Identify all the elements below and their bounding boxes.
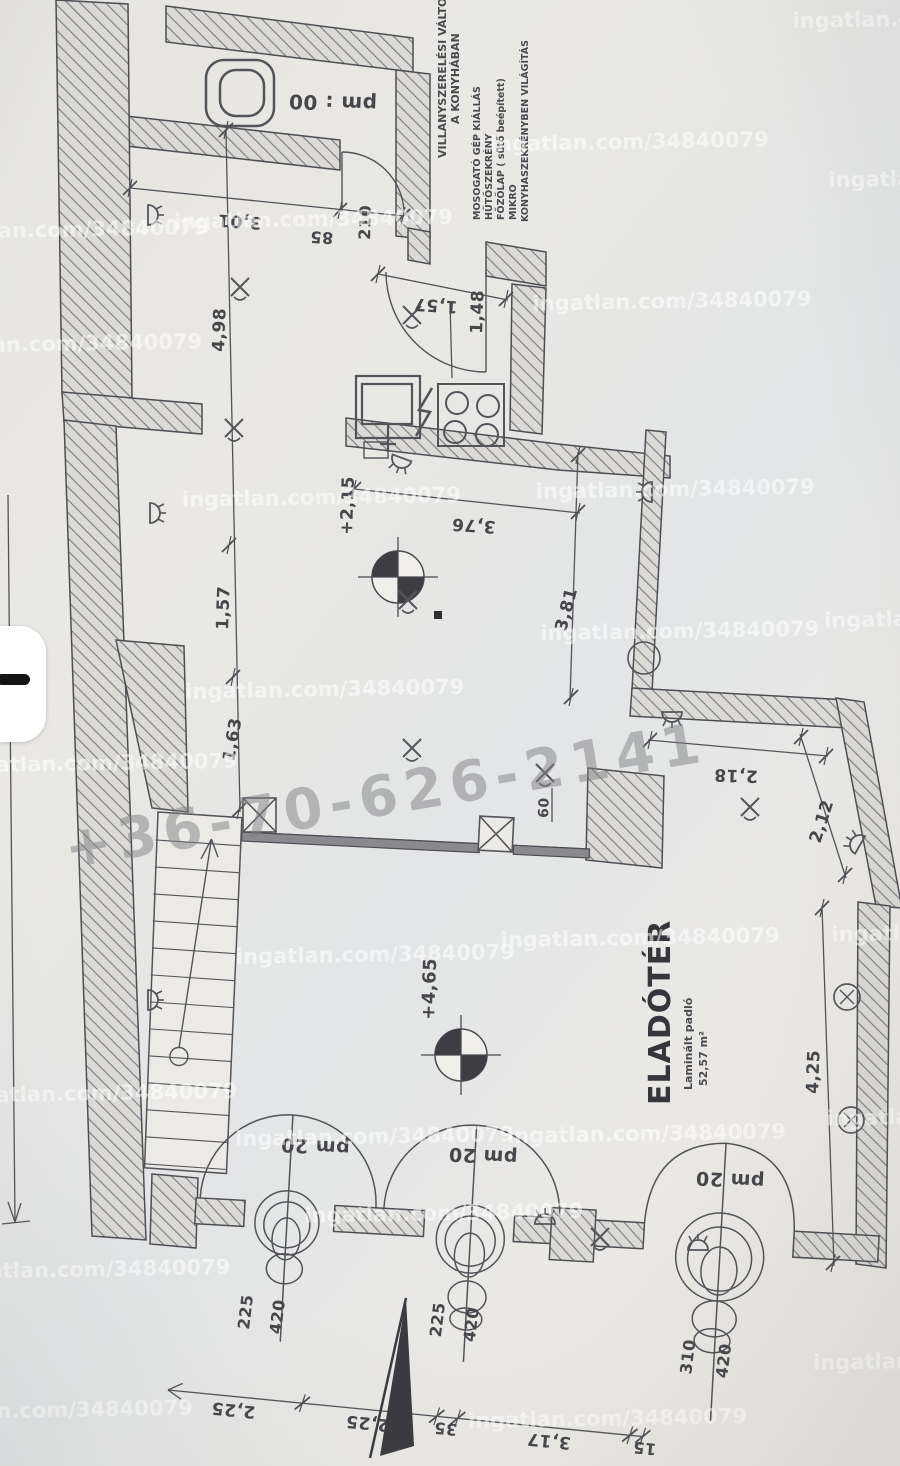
watermark-text: ingatlan.com/34840079 (827, 1102, 900, 1131)
dim-open2-width: 225 (426, 1301, 449, 1338)
wall-counter-band (346, 418, 670, 478)
dim-right-c: 4,25 (803, 1050, 825, 1095)
dim-hall-width: 3,76 (451, 513, 496, 536)
notes-item-1: MOSOGATÓ GÉP KIÁLLÁS (471, 86, 483, 220)
dim-chain-5: 15 (632, 1438, 657, 1459)
watermark-text: ingatlan.com/34840079 (831, 918, 900, 947)
wall-sconce-icon (150, 503, 166, 523)
watermark-text: ingatlan.com/34840079 (813, 1346, 900, 1375)
level-marker-main (421, 1015, 501, 1095)
dim-chain-2: 2,25 (345, 1411, 391, 1435)
watermark-text: ingatlan.com/34840079 (507, 1119, 786, 1148)
wall-sconce-icon (387, 455, 411, 477)
dim-open3-width: 310 (676, 1338, 699, 1375)
notes-item-4: MIKRO (508, 184, 519, 220)
level-main-label: +4,65 (418, 957, 441, 1020)
ceiling-lamp-icon (741, 798, 759, 820)
watermark-text: ingatlan.com/34840079 (532, 287, 811, 316)
watermark-text: ingatlan.com/34840079 (500, 923, 779, 952)
watermark-text: ingatlan.com/34840079 (235, 1122, 514, 1151)
dim-left-a: 4,98 (209, 308, 231, 353)
watermark-text: ingatlan.com/34840079 (304, 1199, 583, 1228)
bottom-wall: pm 20 pm 20 pm 20 225 420 225 420 310 42… (185, 1110, 884, 1430)
wall-kitchen-top (486, 242, 546, 286)
level-marker-mid (358, 537, 438, 617)
notes-title-line2: A KONYHÁBAN (449, 33, 462, 124)
watermark-text: ingatlan.com/34840079 (468, 1404, 747, 1433)
watermark-text: ingatlan.com/34840079 (174, 205, 453, 234)
wall-sconce-icon (688, 1234, 708, 1250)
floor-dot (434, 611, 442, 619)
wc-parapet-label: pm : 00 (288, 89, 377, 116)
shaft-box-mid (478, 816, 514, 852)
minimize-handle-button[interactable] (0, 626, 46, 742)
watermark-text: ingatlan.com/34840079 (182, 483, 461, 512)
room-area-label: 52,57 m² (697, 1031, 710, 1086)
watermark-text: ingatlan.com/34840079 (185, 675, 464, 704)
dim-open2-height: 420 (460, 1306, 483, 1343)
dim-chain-1: 2,25 (211, 1397, 257, 1421)
minus-icon (0, 674, 30, 685)
watermark-text: ingatlan.com/34840079 (536, 475, 815, 504)
wall-bottom-left-block (150, 1174, 198, 1248)
watermark-text: ingatlan.com/34840079 (792, 4, 900, 33)
watermark-text: ingatlan.com/34840079 (0, 1255, 231, 1284)
door3-parapet-label: pm 20 (695, 1167, 765, 1193)
dim-chain-3: 35 (433, 1418, 458, 1439)
ceiling-lamp-icon (225, 419, 243, 441)
ceiling-lamp-icon (231, 278, 249, 300)
kitchen-notes: VILLANYSZERELÉSI VÁLTOZÁSOK A KONYHÁBAN … (436, 0, 531, 222)
wall-right-side (856, 902, 890, 1268)
dim-open3-height: 420 (712, 1342, 735, 1379)
floorplan-photo: pm 20 pm 20 pm 20 225 420 225 420 310 42… (0, 0, 900, 1466)
watermark-text: ingatlan.com/34840079 (828, 163, 900, 192)
dim-chain-4: 3,17 (526, 1428, 572, 1452)
watermark-text: ingatlan.com/34840079 (236, 940, 515, 969)
watermark-text: ingatlan.com/34840079 (0, 1396, 193, 1425)
watermark-text: ingatlan.com/34840079 (540, 617, 819, 646)
toilet-icon (206, 60, 274, 126)
wall-kitchen-top-stub (408, 228, 430, 264)
ceiling-lamp-icon (834, 984, 860, 1010)
room-floor-label: Laminált padló (682, 997, 695, 1090)
dim-open1-width: 225 (234, 1293, 257, 1330)
watermark-text: ingatlan.com/34840079 (0, 1079, 237, 1108)
watermark-text: ingatlan.com/34840079 (0, 329, 202, 358)
dim-open1-height: 420 (266, 1298, 289, 1335)
watermark-text: ingatlan.com/34840079 (490, 127, 769, 156)
dim-right-a: 2,18 (714, 764, 759, 786)
wall-top-band (166, 6, 413, 72)
watermark-text: ingatlan.com/34840079 (824, 604, 900, 633)
dim-kitchen-depth: 1,48 (467, 290, 489, 335)
watermark-text: ingatlan.com/34840079 (0, 749, 238, 778)
wc-door (342, 152, 404, 212)
north-arrow-icon (370, 1298, 414, 1458)
dim-kitchen-width: 1,57 (413, 293, 458, 316)
floorplan-drawing: pm 20 pm 20 pm 20 225 420 225 420 310 42… (0, 0, 900, 1466)
notes-title-line1: VILLANYSZERELÉSI VÁLTOZÁSOK (436, 0, 449, 158)
dim-left-b: 1,57 (213, 586, 235, 631)
